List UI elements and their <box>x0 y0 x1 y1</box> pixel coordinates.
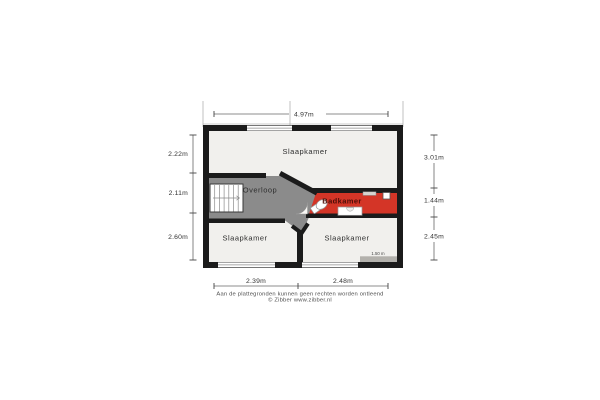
height-line-label: 1.50 m <box>371 251 385 256</box>
dimension-label-left-bottom: 2.60m <box>168 234 188 241</box>
credit-text: © Zibber www.zibber.nl <box>268 297 332 304</box>
dimension-label-left-middle: 2.11m <box>169 190 189 197</box>
sink-basin-icon <box>347 208 354 212</box>
floorplan-drawing: 4.97m 2.22m 2.11m 2.60m 3.01m 1.44m 2.45… <box>0 0 600 400</box>
dimension-label-bottom-right: 2.48m <box>333 278 353 285</box>
dimension-right: 3.01m 1.44m 2.45m <box>424 135 444 260</box>
radiator-icon <box>363 192 376 196</box>
height-line-strip <box>360 256 397 262</box>
vent-icon <box>383 193 390 200</box>
dimension-label-total-width: 4.97m <box>294 112 314 119</box>
dimension-label-right-middle: 1.44m <box>424 198 444 205</box>
room-label-bedroom-bottom-right: Slaapkamer <box>324 234 369 243</box>
room-label-bedroom-bottom-left: Slaapkamer <box>222 234 267 243</box>
room-label-bedroom-top: Slaapkamer <box>282 147 327 156</box>
room-label-bathroom: Badkamer <box>322 197 361 206</box>
footer: Aan de plattegronden kunnen geen rechten… <box>216 292 383 304</box>
dimension-label-left-top: 2.22m <box>168 151 188 158</box>
dimension-label-right-bottom: 2.45m <box>424 234 444 241</box>
dimension-label-bottom-left: 2.39m <box>246 278 266 285</box>
room-label-landing: Overloop <box>243 186 277 195</box>
dimension-bottom: 2.39m 2.48m <box>214 278 388 289</box>
building: 1.50 m Slaapkamer Overloop Badkamer Slaa… <box>203 124 403 268</box>
dimension-left: 2.22m 2.11m 2.60m <box>168 135 196 260</box>
dimension-label-right-top: 3.01m <box>424 155 444 162</box>
floorplan-page: 4.97m 2.22m 2.11m 2.60m 3.01m 1.44m 2.45… <box>0 0 600 400</box>
staircase <box>210 184 243 212</box>
